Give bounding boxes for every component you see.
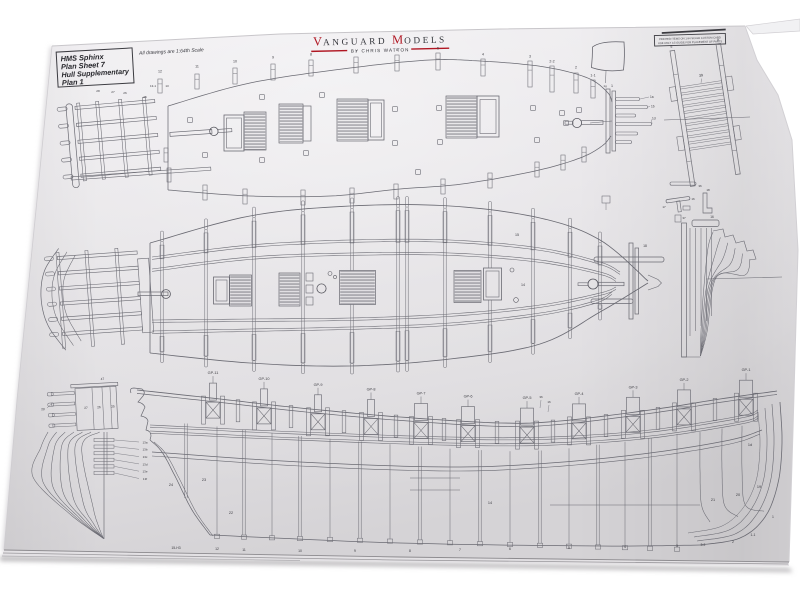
- svg-text:GP-1: GP-1: [742, 368, 751, 372]
- svg-text:1a: 1a: [650, 95, 654, 99]
- svg-text:1: 1: [611, 84, 613, 88]
- svg-text:1: 1: [772, 515, 774, 519]
- svg-text:16: 16: [710, 215, 714, 219]
- svg-text:13a: 13a: [142, 440, 147, 444]
- svg-text:3: 3: [529, 55, 531, 59]
- svg-text:2-2: 2-2: [549, 60, 554, 64]
- svg-text:17: 17: [662, 205, 666, 209]
- svg-text:5: 5: [568, 546, 570, 550]
- svg-text:37: 37: [682, 216, 686, 220]
- svg-text:11: 11: [242, 548, 246, 552]
- svg-text:15-H3: 15-H3: [171, 546, 180, 550]
- svg-text:8: 8: [310, 53, 312, 57]
- svg-text:24: 24: [169, 483, 173, 487]
- svg-text:39: 39: [699, 73, 704, 78]
- svg-text:1b: 1b: [651, 105, 655, 109]
- svg-text:1-1: 1-1: [751, 533, 756, 537]
- svg-text:13d: 13d: [142, 462, 147, 466]
- svg-text:16: 16: [547, 400, 551, 404]
- svg-text:25: 25: [143, 95, 147, 99]
- svg-text:13e: 13e: [142, 470, 147, 474]
- svg-text:14: 14: [521, 283, 525, 287]
- svg-text:5: 5: [437, 47, 439, 51]
- svg-text:28: 28: [41, 407, 45, 411]
- svg-text:18: 18: [706, 188, 710, 192]
- svg-text:13f: 13f: [143, 477, 147, 481]
- svg-text:2: 2: [575, 66, 577, 70]
- svg-text:1-1: 1-1: [590, 74, 595, 78]
- svg-text:26: 26: [97, 405, 101, 409]
- svg-text:3: 3: [676, 544, 678, 548]
- svg-text:Plan 1: Plan 1: [62, 77, 84, 87]
- svg-text:12: 12: [158, 70, 162, 74]
- svg-text:11: 11: [195, 65, 199, 69]
- svg-text:6: 6: [396, 48, 398, 52]
- svg-text:GP-2: GP-2: [680, 378, 689, 382]
- svg-text:8: 8: [409, 549, 411, 553]
- svg-text:4: 4: [482, 53, 484, 57]
- svg-text:GP-8: GP-8: [367, 388, 376, 392]
- svg-text:13c: 13c: [143, 455, 148, 459]
- svg-text:13: 13: [165, 84, 169, 88]
- svg-text:23: 23: [202, 478, 206, 482]
- svg-text:7: 7: [459, 548, 461, 552]
- svg-text:2: 2: [732, 540, 734, 544]
- svg-text:9: 9: [354, 549, 356, 553]
- svg-text:10: 10: [298, 549, 302, 553]
- svg-text:3-2: 3-2: [701, 543, 706, 547]
- svg-text:GP-7: GP-7: [417, 392, 426, 396]
- svg-text:GP-5: GP-5: [523, 396, 532, 400]
- svg-text:22: 22: [229, 511, 233, 515]
- svg-text:GP-11: GP-11: [208, 371, 219, 375]
- svg-text:13-1: 13-1: [150, 84, 156, 88]
- svg-text:18: 18: [643, 244, 647, 248]
- svg-text:27: 27: [111, 90, 115, 94]
- svg-text:20: 20: [736, 493, 740, 497]
- svg-text:36: 36: [539, 395, 543, 399]
- svg-text:26: 26: [123, 91, 127, 95]
- svg-text:27: 27: [84, 406, 88, 410]
- svg-text:36: 36: [698, 184, 702, 188]
- svg-text:9: 9: [272, 56, 274, 60]
- svg-text:7: 7: [355, 50, 357, 54]
- svg-text:47: 47: [101, 377, 105, 381]
- svg-text:25: 25: [111, 404, 115, 408]
- svg-text:21: 21: [711, 498, 715, 502]
- svg-text:16: 16: [691, 197, 695, 201]
- svg-text:1d: 1d: [652, 117, 656, 121]
- svg-text:1d: 1d: [748, 443, 752, 447]
- svg-text:6: 6: [509, 547, 511, 551]
- svg-text:GP-10: GP-10: [259, 377, 270, 381]
- svg-text:28: 28: [96, 89, 100, 93]
- svg-text:4: 4: [624, 545, 626, 549]
- svg-text:1g: 1g: [603, 84, 607, 88]
- svg-text:15: 15: [515, 233, 519, 237]
- svg-text:GP-6: GP-6: [464, 395, 473, 399]
- svg-text:GP-4: GP-4: [575, 392, 584, 396]
- svg-text:GP-3: GP-3: [629, 385, 638, 389]
- svg-text:14: 14: [488, 501, 492, 505]
- svg-text:GP-9: GP-9: [314, 383, 323, 387]
- svg-text:19: 19: [757, 485, 761, 489]
- svg-text:10: 10: [233, 60, 237, 64]
- svg-text:13b: 13b: [142, 448, 147, 452]
- svg-text:12: 12: [215, 547, 219, 551]
